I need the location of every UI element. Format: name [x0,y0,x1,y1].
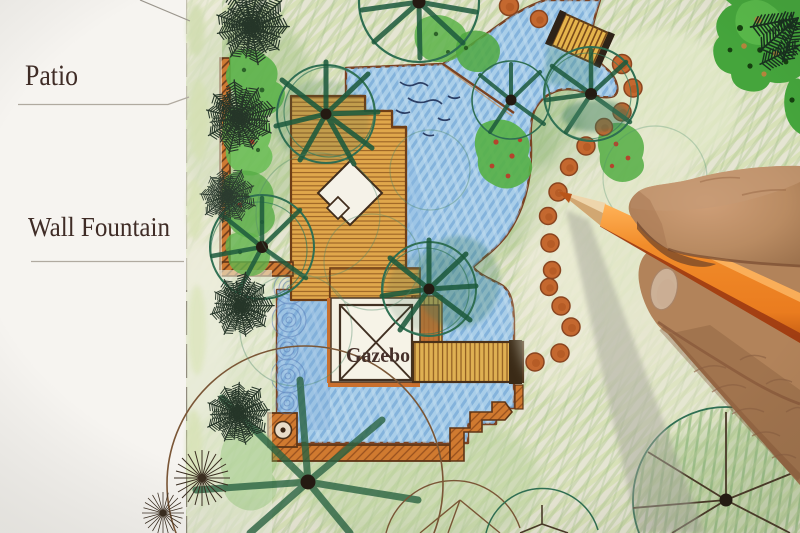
svg-text:Gazebo: Gazebo [346,343,410,367]
